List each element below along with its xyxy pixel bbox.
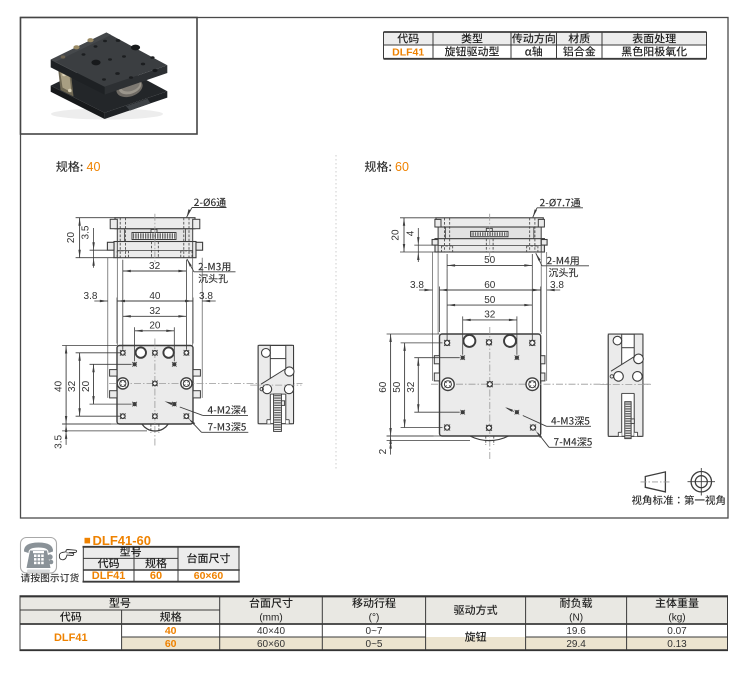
svg-text:32: 32 — [149, 261, 161, 272]
svg-text:32: 32 — [67, 380, 78, 392]
svg-text:DLF41-60: DLF41-60 — [93, 533, 152, 548]
svg-text:3.8: 3.8 — [199, 291, 213, 302]
svg-text:2: 2 — [378, 448, 389, 454]
svg-text:3.5: 3.5 — [81, 225, 92, 239]
svg-text:0.07: 0.07 — [667, 626, 687, 637]
svg-text:60: 60 — [150, 570, 162, 582]
svg-text:3.8: 3.8 — [550, 280, 564, 291]
svg-text:40: 40 — [149, 291, 161, 302]
svg-text:DLF41: DLF41 — [392, 47, 424, 59]
svg-text:40: 40 — [165, 625, 177, 637]
svg-text:0~5: 0~5 — [366, 639, 383, 650]
svg-text:32: 32 — [406, 381, 417, 393]
svg-text:60: 60 — [395, 160, 409, 174]
svg-text:60×60: 60×60 — [194, 570, 224, 582]
svg-text:20: 20 — [391, 229, 402, 241]
svg-text:29.4: 29.4 — [566, 639, 586, 650]
svg-text:32: 32 — [149, 306, 161, 317]
svg-text:3.8: 3.8 — [410, 280, 424, 291]
svg-text:19.6: 19.6 — [566, 626, 586, 637]
svg-text:40: 40 — [87, 160, 101, 174]
svg-text:50: 50 — [484, 295, 496, 306]
svg-text:3.8: 3.8 — [84, 291, 98, 302]
svg-text:50: 50 — [484, 255, 496, 266]
svg-text:60×60: 60×60 — [257, 639, 286, 650]
svg-text:60: 60 — [378, 381, 389, 393]
svg-text:(°): (°) — [369, 613, 380, 624]
svg-text:0.13: 0.13 — [667, 639, 687, 650]
svg-text:0~7: 0~7 — [366, 626, 383, 637]
svg-text:20: 20 — [149, 321, 161, 332]
svg-text:40×40: 40×40 — [257, 626, 286, 637]
svg-text:3.5: 3.5 — [54, 435, 65, 449]
svg-text:60: 60 — [165, 638, 177, 650]
svg-text:DLF41: DLF41 — [92, 570, 126, 582]
svg-text:DLF41: DLF41 — [54, 632, 88, 644]
svg-text:(kg): (kg) — [668, 613, 685, 624]
svg-text:50: 50 — [392, 381, 403, 393]
svg-text:60: 60 — [484, 280, 496, 291]
svg-text:(mm): (mm) — [259, 613, 282, 624]
svg-text:20: 20 — [81, 380, 92, 392]
svg-text:20: 20 — [66, 232, 77, 244]
svg-text:40: 40 — [54, 380, 65, 392]
svg-text:4: 4 — [405, 230, 416, 236]
svg-text:(N): (N) — [569, 613, 583, 624]
svg-text:32: 32 — [484, 310, 496, 321]
